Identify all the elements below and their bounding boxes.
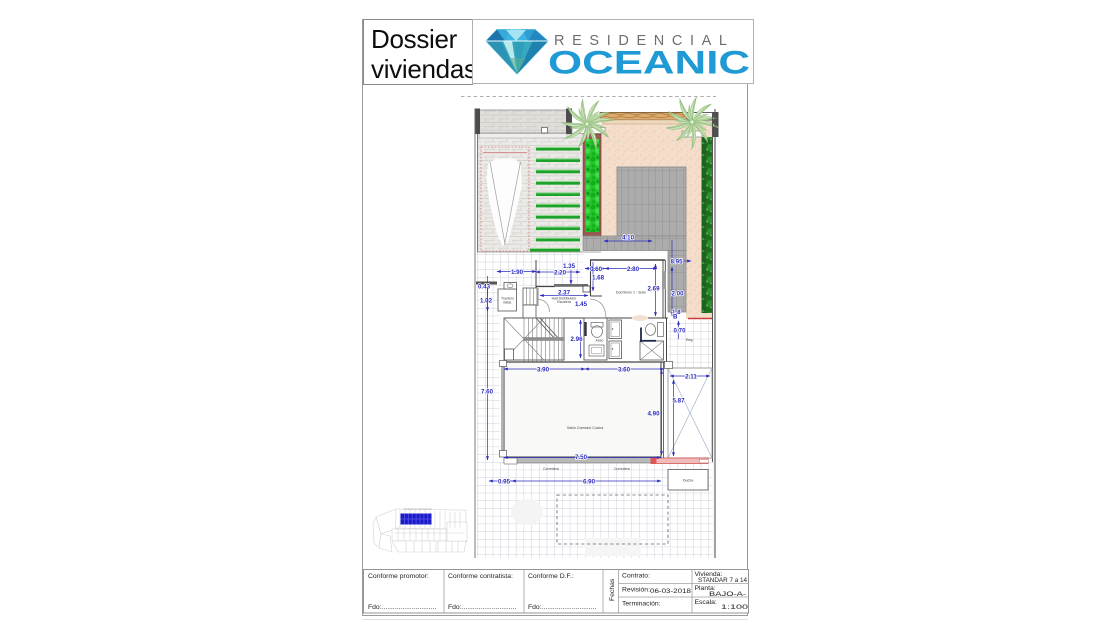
svg-text:Aseo: Aseo xyxy=(596,339,604,343)
svg-text:2.80: 2.80 xyxy=(627,266,640,273)
svg-text:Fdo:..........................: Fdo:............................. xyxy=(448,604,516,611)
svg-text:Escala:: Escala: xyxy=(695,599,717,606)
svg-text:6.90: 6.90 xyxy=(583,478,596,485)
svg-text:2.37: 2.37 xyxy=(558,290,571,297)
svg-text:5.87: 5.87 xyxy=(672,398,685,405)
svg-text:Terminación:: Terminación: xyxy=(622,601,661,608)
svg-text:0.60: 0.60 xyxy=(590,266,603,273)
svg-text:0.43: 0.43 xyxy=(478,284,491,291)
svg-text:Fdo:..........................: Fdo:............................. xyxy=(528,604,596,611)
svg-text:BAJO-A-: BAJO-A- xyxy=(709,591,746,598)
svg-text:4.10: 4.10 xyxy=(622,235,635,242)
svg-text:1.45: 1.45 xyxy=(575,301,588,308)
svg-text:1.68: 1.68 xyxy=(592,275,605,282)
svg-text:Corredera: Corredera xyxy=(614,467,630,471)
svg-text:0.70: 0.70 xyxy=(673,328,686,335)
svg-text:1.90: 1.90 xyxy=(511,269,524,276)
svg-text:Ducha: Ducha xyxy=(683,479,693,483)
svg-text:3.90: 3.90 xyxy=(537,366,550,373)
svg-text:Dossier: Dossier xyxy=(371,24,458,54)
svg-text:06-03-2018: 06-03-2018 xyxy=(650,588,691,595)
svg-text:Fdo:..........................: Fdo:............................. xyxy=(368,604,436,611)
svg-text:2.96: 2.96 xyxy=(570,336,583,343)
svg-text:3.60: 3.60 xyxy=(618,366,631,373)
svg-text:viviendas: viviendas xyxy=(371,54,477,84)
svg-text:Escalera: Escalera xyxy=(557,300,571,304)
svg-text:Corredera: Corredera xyxy=(543,467,559,471)
svg-text:Salón Comedor Cocina: Salón Comedor Cocina xyxy=(567,426,603,430)
svg-text:1:100: 1:100 xyxy=(721,604,748,611)
svg-text:1.35: 1.35 xyxy=(563,263,576,270)
svg-text:2.69: 2.69 xyxy=(647,286,660,293)
svg-text:2.11: 2.11 xyxy=(685,373,697,380)
svg-text:Revisión:: Revisión: xyxy=(622,587,650,594)
svg-text:Contrato:: Contrato: xyxy=(622,573,650,580)
svg-text:Dormitorio 1 - Suite: Dormitorio 1 - Suite xyxy=(616,291,646,295)
svg-text:2.00: 2.00 xyxy=(671,291,684,298)
svg-text:instal.: instal. xyxy=(503,301,512,305)
svg-text:1.02: 1.02 xyxy=(480,298,493,305)
svg-text:Conforme contratista:: Conforme contratista: xyxy=(448,573,513,580)
svg-text:Conforme D.F.:: Conforme D.F.: xyxy=(528,573,574,580)
svg-text:VIVIENDAS ADOSADAS: VIVIENDAS ADOSADAS xyxy=(403,507,432,511)
svg-text:7.50: 7.50 xyxy=(575,454,588,461)
svg-text:Conforme promotor:: Conforme promotor: xyxy=(368,573,429,580)
svg-text:STANDAR 7 a 14: STANDAR 7 a 14 xyxy=(698,577,747,584)
svg-text:0.95: 0.95 xyxy=(498,478,511,485)
svg-text:2.20: 2.20 xyxy=(554,270,567,277)
svg-text:8.95: 8.95 xyxy=(670,259,683,266)
svg-text:7.60: 7.60 xyxy=(481,389,494,396)
svg-text:4.90: 4.90 xyxy=(647,411,660,418)
svg-text:Fechas: Fechas xyxy=(609,578,616,601)
svg-text:OCEANIC: OCEANIC xyxy=(548,45,750,81)
svg-text:Reg.: Reg. xyxy=(686,338,693,342)
svg-text:B: B xyxy=(673,314,678,321)
